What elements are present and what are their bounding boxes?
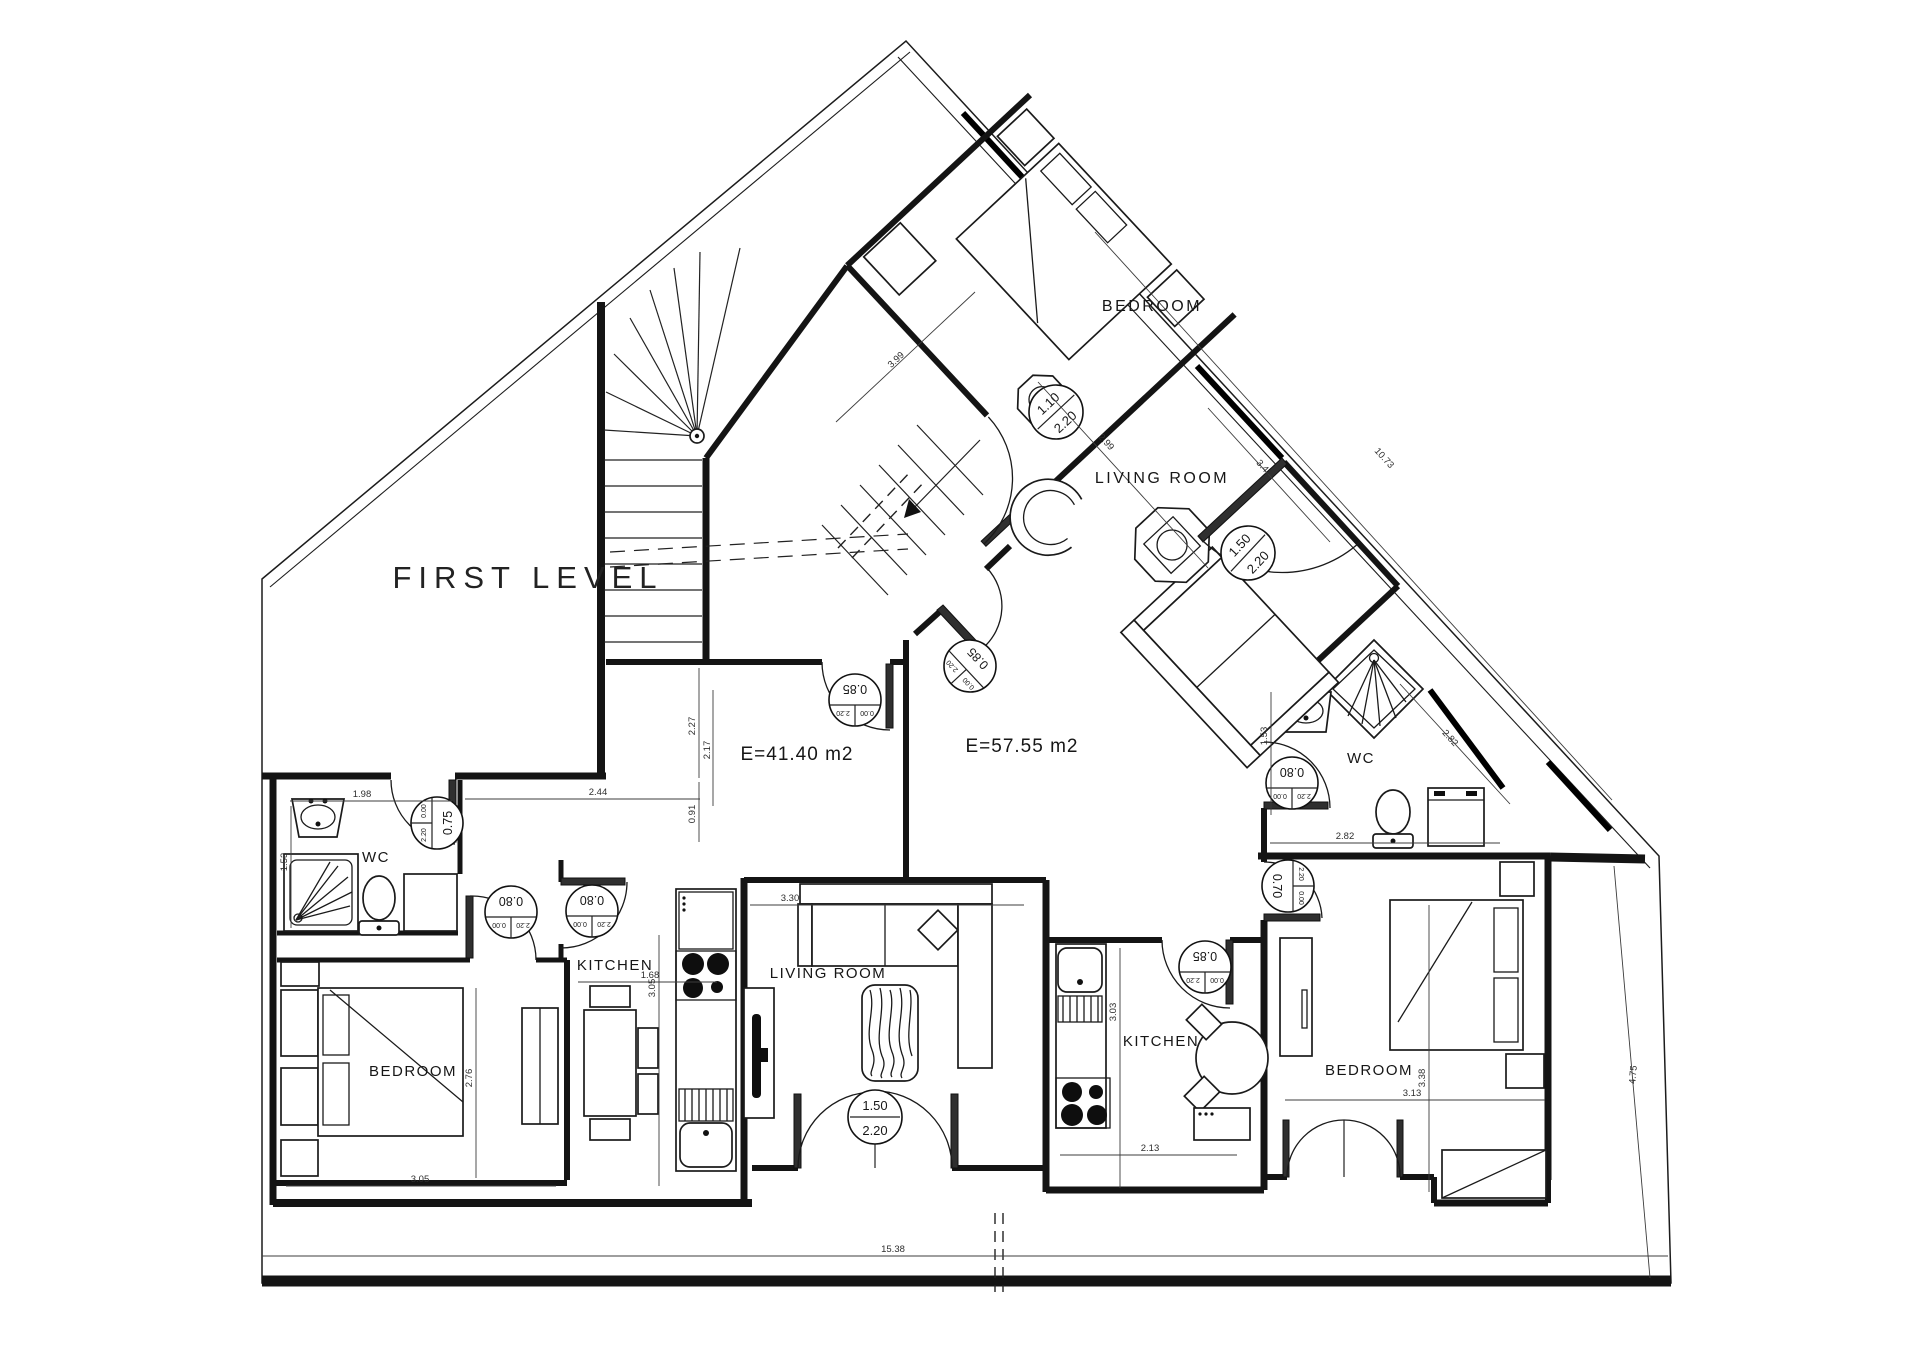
chair-icon xyxy=(590,986,630,1007)
room-label-bedroom-top: BEDROOM xyxy=(1102,298,1202,315)
room-label-living-bottom: LIVING ROOM xyxy=(770,965,887,982)
shelf-icon xyxy=(281,962,319,986)
svg-text:2.20: 2.20 xyxy=(1186,976,1200,983)
nightstand-icon xyxy=(281,1068,318,1125)
svg-text:3.30: 3.30 xyxy=(781,893,800,904)
svg-text:2.17: 2.17 xyxy=(702,741,713,760)
svg-text:2.20: 2.20 xyxy=(516,921,530,928)
svg-text:0.85: 0.85 xyxy=(843,682,867,696)
chair-icon xyxy=(590,1119,630,1140)
svg-text:2.20: 2.20 xyxy=(836,709,850,716)
door-tag: 2.20 0.00 0.70 xyxy=(1262,860,1314,912)
svg-text:2.99: 2.99 xyxy=(1096,432,1117,453)
living-room-bottom xyxy=(744,884,992,1118)
svg-text:3.03: 3.03 xyxy=(1108,1003,1119,1022)
cabinet-icon xyxy=(864,223,936,295)
svg-text:0.00: 0.00 xyxy=(492,921,506,928)
svg-text:2.20: 2.20 xyxy=(862,1123,887,1138)
chair-icon xyxy=(638,1028,658,1068)
svg-text:2.44: 2.44 xyxy=(589,787,608,798)
toilet-icon xyxy=(1376,790,1410,834)
door-tag: 0.00 2.20 0.85 xyxy=(1179,941,1231,993)
stair-direction-arrow xyxy=(904,499,921,518)
door-tag: 2.20 0.00 0.80 xyxy=(485,886,537,938)
room-label-bedroom-right: BEDROOM xyxy=(1325,1062,1413,1079)
kitchen-sink-icon xyxy=(1058,948,1102,992)
svg-text:0.70: 0.70 xyxy=(1270,874,1284,898)
kitchen-sink-icon xyxy=(680,1123,732,1167)
svg-text:2.20: 2.20 xyxy=(1297,792,1311,799)
svg-text:0.85: 0.85 xyxy=(1193,949,1217,963)
svg-text:1.50: 1.50 xyxy=(862,1098,887,1113)
floor-plan-page: 1.10 2.20 2.20 0.00 0.75 2.20 0.00 0.80 … xyxy=(0,0,1920,1358)
svg-text:0.00: 0.00 xyxy=(860,709,874,716)
room-label-bedroom-left: BEDROOM xyxy=(369,1063,457,1080)
dresser-icon xyxy=(281,1140,318,1176)
walls xyxy=(262,266,1645,1205)
svg-text:3.38: 3.38 xyxy=(1417,1069,1428,1088)
svg-text:1.53: 1.53 xyxy=(279,853,290,872)
armchair-icon xyxy=(994,464,1101,571)
svg-text:3.05: 3.05 xyxy=(411,1174,430,1185)
svg-text:0.00: 0.00 xyxy=(421,804,428,818)
svg-text:0.80: 0.80 xyxy=(580,893,604,907)
area-label-apartment-b: E=57.55 m2 xyxy=(966,736,1079,757)
svg-text:2.20: 2.20 xyxy=(597,920,611,927)
room-label-wc-left: WC xyxy=(362,849,390,866)
door-tag: 1.50 2.20 xyxy=(848,1090,902,1144)
bedroom-right xyxy=(1280,862,1546,1198)
svg-text:1.98: 1.98 xyxy=(353,789,372,800)
svg-text:10.73: 10.73 xyxy=(1372,446,1396,471)
nightstand-icon xyxy=(1506,1054,1544,1088)
svg-text:1.53: 1.53 xyxy=(1259,727,1270,746)
door-tag: 0.00 2.20 0.85 xyxy=(933,629,1006,702)
floor-plan-drawing: 1.10 2.20 2.20 0.00 0.75 2.20 0.00 0.80 … xyxy=(0,0,1920,1358)
svg-text:2.13: 2.13 xyxy=(1141,1143,1160,1154)
room-label-wc-right: WC xyxy=(1347,750,1375,767)
rug-icon xyxy=(862,985,918,1081)
room-label-kitchen-left: KITCHEN xyxy=(577,957,653,974)
door-tag: 2.20 0.00 0.75 xyxy=(411,797,463,849)
tv-icon xyxy=(752,1014,761,1098)
washing-machine-icon xyxy=(1428,788,1484,846)
toilet-icon xyxy=(363,876,395,920)
svg-text:2.27: 2.27 xyxy=(687,717,698,736)
nightstand-icon xyxy=(281,990,318,1056)
bed-icon xyxy=(956,143,1171,359)
svg-text:0.00: 0.00 xyxy=(1297,891,1304,905)
door-tag: 2.20 0.00 0.80 xyxy=(566,885,618,937)
svg-text:0.00: 0.00 xyxy=(1210,976,1224,983)
table-icon xyxy=(584,1010,636,1116)
svg-text:3.99: 3.99 xyxy=(886,350,907,371)
svg-text:3.05: 3.05 xyxy=(647,979,658,998)
svg-text:0.75: 0.75 xyxy=(441,811,455,835)
door-tag: 2.20 0.00 0.80 xyxy=(1266,757,1318,809)
area-label-apartment-a: E=41.40 m2 xyxy=(741,744,854,765)
svg-text:0.80: 0.80 xyxy=(499,894,523,908)
svg-text:2.82: 2.82 xyxy=(1336,831,1355,842)
svg-text:2.20: 2.20 xyxy=(1297,867,1304,881)
svg-text:4.75: 4.75 xyxy=(1627,1065,1640,1084)
chair-icon xyxy=(638,1074,658,1114)
plan-title: FIRST LEVEL xyxy=(392,560,663,595)
room-label-kitchen-right: KITCHEN xyxy=(1123,1033,1199,1050)
svg-text:2.76: 2.76 xyxy=(464,1069,475,1088)
shower-icon xyxy=(284,854,358,931)
svg-text:0.00: 0.00 xyxy=(573,920,587,927)
shower-icon xyxy=(1325,640,1423,738)
svg-text:0.00: 0.00 xyxy=(1273,792,1287,799)
bed-icon xyxy=(318,988,463,1136)
fridge-icon xyxy=(1194,1108,1250,1140)
svg-text:3.13: 3.13 xyxy=(1403,1088,1422,1099)
bathroom-cabinet-icon xyxy=(404,874,457,931)
sofa-icon xyxy=(800,884,992,904)
svg-text:15.38: 15.38 xyxy=(881,1244,905,1255)
room-label-living-top: LIVING ROOM xyxy=(1095,470,1229,487)
door-tag: 0.00 2.20 0.85 xyxy=(829,674,881,726)
svg-text:0.91: 0.91 xyxy=(687,805,698,824)
svg-text:2.20: 2.20 xyxy=(421,828,428,842)
bed-icon xyxy=(1390,900,1523,1050)
nightstand-icon xyxy=(1500,862,1534,896)
svg-text:0.80: 0.80 xyxy=(1280,765,1304,779)
